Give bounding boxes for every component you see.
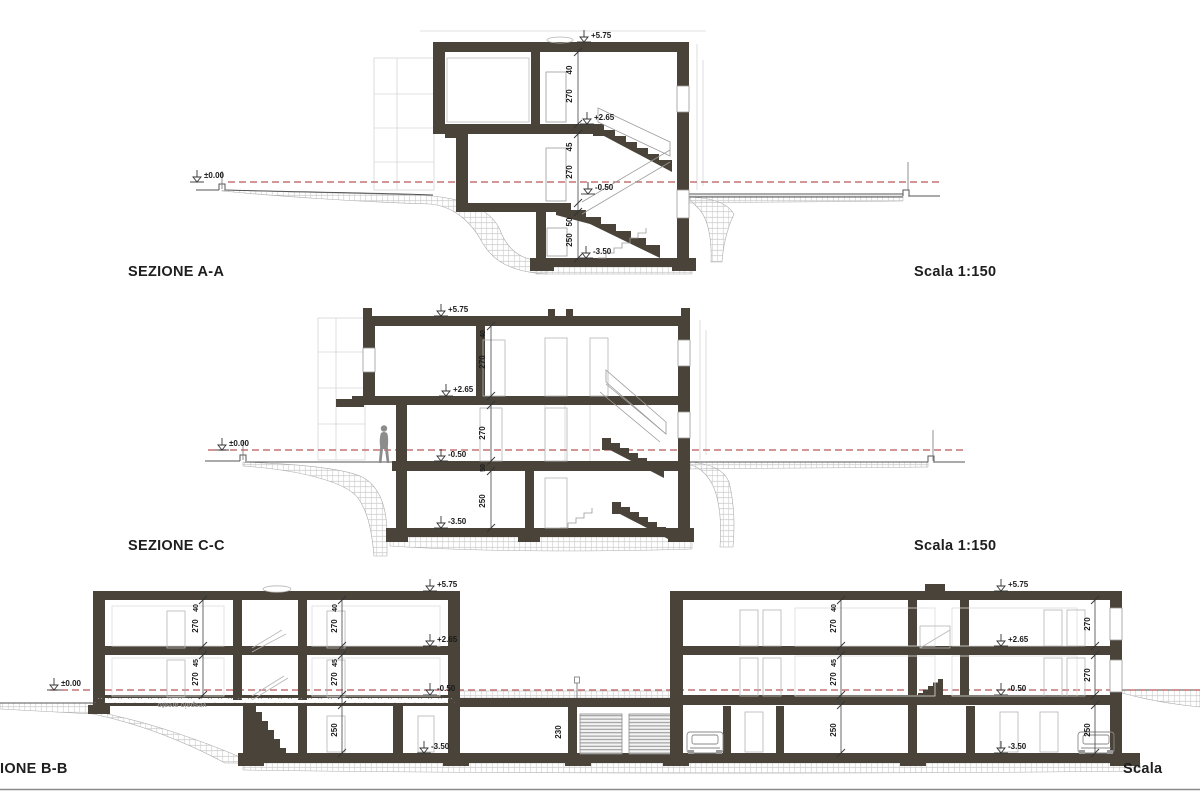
level-label: -3.50: [448, 517, 467, 526]
bb-garage-link: [455, 698, 675, 755]
dim-label: 270: [565, 165, 574, 179]
level-label: ±0.00: [229, 439, 250, 448]
dim-label: 45: [565, 142, 574, 151]
section-cc-scale: Scala 1:150: [914, 538, 996, 554]
sections-drawing: +5.75+2.65-0.50-3.50±0.00402704527050250: [0, 0, 1200, 800]
section-cc-title: SEZIONE C-C: [128, 538, 225, 554]
dim-label: 40: [480, 330, 487, 338]
level-label: +5.75: [1008, 580, 1029, 589]
section-cc-drawing: +5.75+2.65-0.50-3.50±0.004027027050250: [205, 304, 965, 556]
dim-label: 40: [831, 604, 838, 612]
level-label: -0.50: [437, 684, 456, 693]
dim-label: 270: [829, 619, 838, 633]
bb-right-building: [670, 584, 1122, 763]
dim-label: 270: [191, 672, 200, 686]
section-aa-drawing: +5.75+2.65-0.50-3.50±0.00402704527050250: [190, 30, 940, 274]
dim-label: 50: [565, 217, 574, 226]
level-label: ±0.00: [61, 679, 82, 688]
dim-label: 270: [565, 89, 574, 103]
level-label: +2.65: [453, 385, 474, 394]
dim-label: 270: [330, 672, 339, 686]
level-label: ±0.00: [204, 171, 225, 180]
drawing-sheet: +5.75+2.65-0.50-3.50±0.00402704527050250: [0, 0, 1200, 800]
dim-label: 40: [332, 604, 339, 612]
dim-label: 250: [478, 494, 487, 508]
level-label: +2.65: [1008, 635, 1029, 644]
level-label: -3.50: [1008, 742, 1027, 751]
level-label: -0.50: [595, 183, 614, 192]
section-aa-scale: Scala 1:150: [914, 264, 996, 280]
dim-label: 40: [193, 604, 200, 612]
dim-label: 250: [330, 723, 339, 737]
dim-label: 250: [829, 723, 838, 737]
level-label: -0.50: [448, 450, 467, 459]
level-label: +2.65: [437, 635, 458, 644]
dim-label: 50: [480, 464, 487, 472]
level-label: -0.50: [1008, 684, 1027, 693]
section-aa-title: SEZIONE A-A: [128, 264, 224, 280]
dim-label: 45: [332, 659, 339, 667]
dim-label: 270: [330, 619, 339, 633]
level-label: +5.75: [591, 31, 612, 40]
aa-dimensions: +5.75+2.65-0.50-3.50±0.00402704527050250: [190, 30, 615, 262]
level-label: +5.75: [437, 580, 458, 589]
dim-label: 40: [565, 65, 574, 74]
dim-label: 270: [478, 355, 487, 369]
section-bb-title: IONE B-B: [0, 761, 68, 777]
dim-label: 270: [1083, 617, 1092, 631]
cc-dimensions: +5.75+2.65-0.50-3.50±0.004027027050250: [215, 304, 495, 532]
vespaio-label: vespaio areato: [157, 701, 206, 708]
dim-label: 230: [554, 725, 563, 739]
dim-label: 270: [829, 672, 838, 686]
level-label: +2.65: [594, 113, 615, 122]
dim-label: 270: [191, 619, 200, 633]
cc-background: [318, 318, 706, 461]
dim-label: 250: [565, 233, 574, 247]
dim-label: 270: [1083, 668, 1092, 682]
dim-label: 250: [1083, 723, 1092, 737]
level-label: -3.50: [431, 742, 450, 751]
section-bb-drawing: ±0.00+5.75+2.65-0.50-3.50+5.75+2.65-0.50…: [0, 579, 1200, 773]
level-label: -3.50: [593, 247, 612, 256]
dim-label: 270: [478, 426, 487, 440]
dim-label: 45: [831, 659, 838, 667]
level-label: +5.75: [448, 305, 469, 314]
cc-ground: [205, 430, 965, 556]
cc-walls: [336, 308, 694, 542]
dim-label: 45: [193, 659, 200, 667]
car-icon: [687, 732, 723, 754]
person-figure: [379, 425, 390, 463]
section-bb-scale: Scala: [1123, 761, 1162, 777]
